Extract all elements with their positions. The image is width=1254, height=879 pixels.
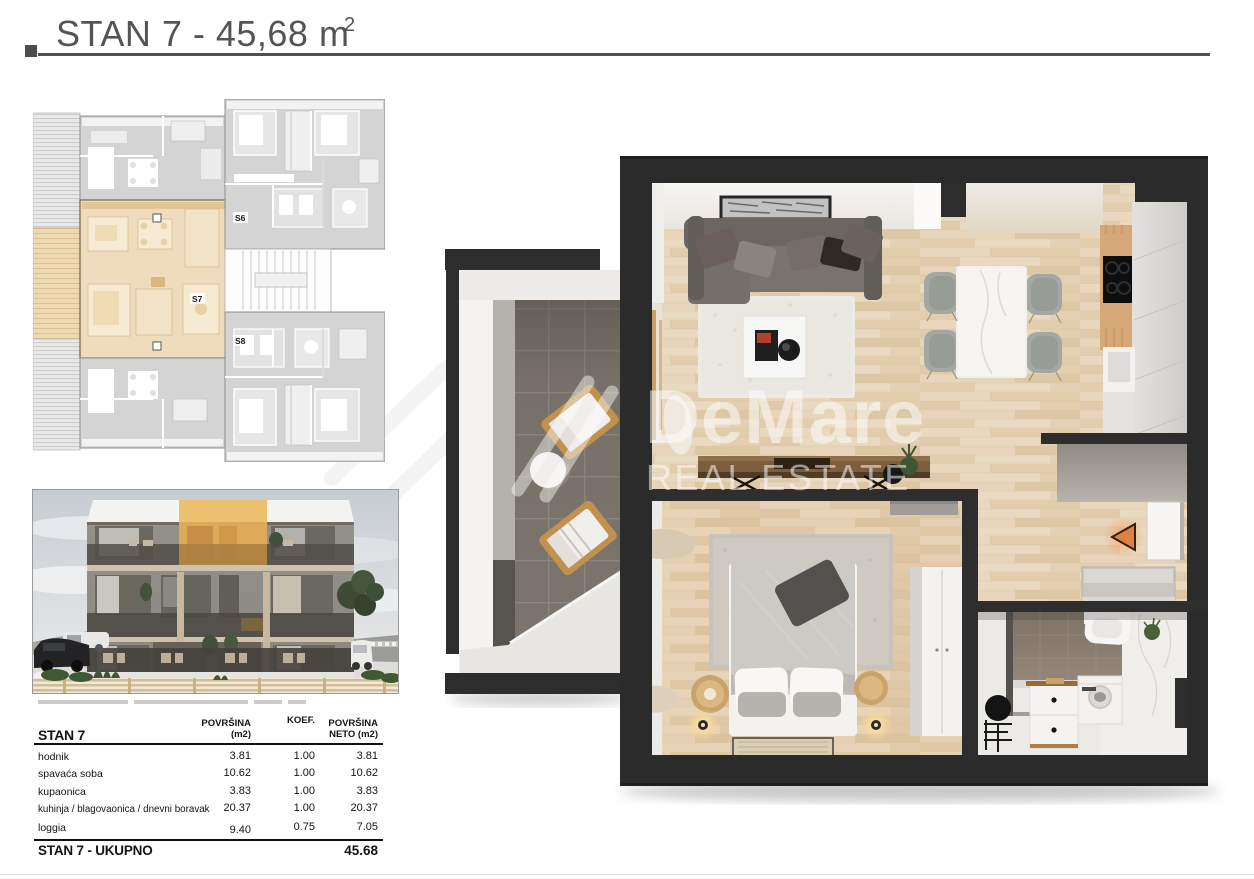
svg-text:S7: S7 bbox=[192, 294, 203, 304]
svg-text:S8: S8 bbox=[235, 336, 246, 346]
svg-text:S6: S6 bbox=[235, 213, 246, 223]
svg-text:DeMare: DeMare bbox=[645, 375, 926, 460]
svg-text:REAL ESTATE: REAL ESTATE bbox=[646, 457, 911, 498]
